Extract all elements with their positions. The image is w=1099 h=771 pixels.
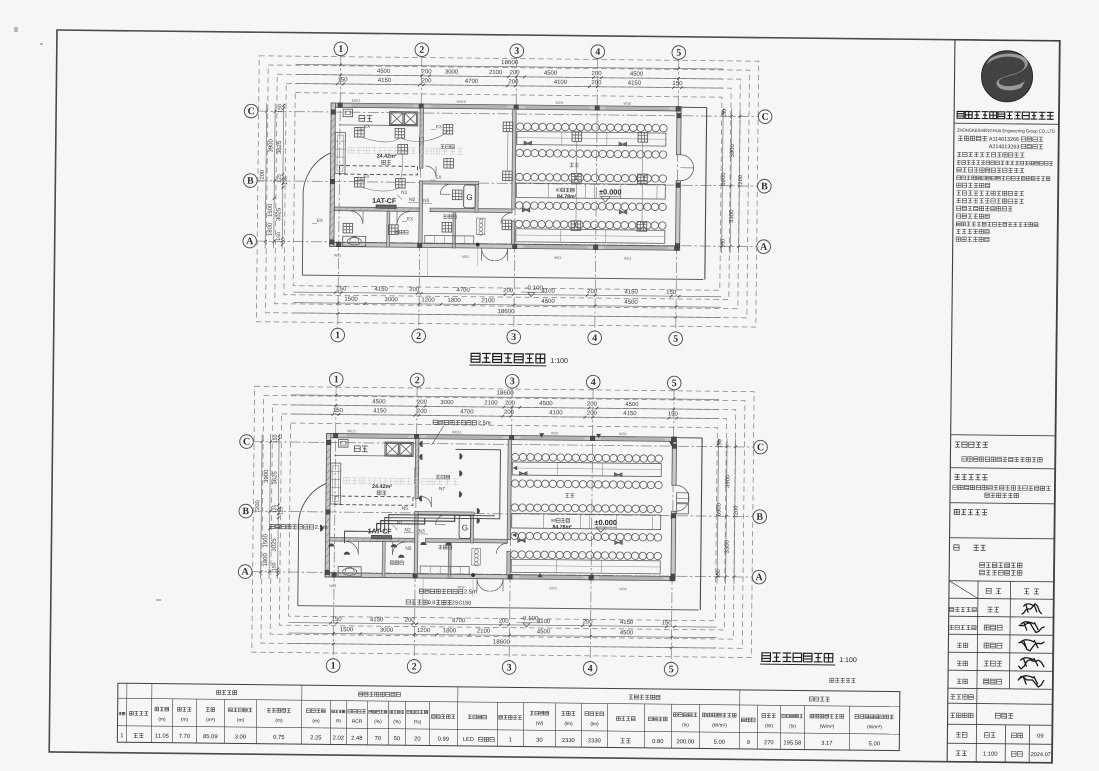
svg-text:1:100: 1:100 [983,752,998,758]
svg-text:2.02: 2.02 [333,736,344,742]
svg-text:EX: EX [407,216,413,221]
svg-text:(lm): (lm) [564,721,573,727]
svg-text:195.58: 195.58 [783,740,801,746]
svg-text:30: 30 [536,738,543,744]
svg-text:1:100: 1:100 [839,657,857,664]
svg-text:2330: 2330 [562,738,575,744]
svg-text:EX: EX [436,124,442,129]
svg-text:N5: N5 [405,546,412,552]
svg-text:2SC150: 2SC150 [452,600,472,606]
svg-text:(%): (%) [414,719,422,725]
svg-text:200.00: 200.00 [676,739,694,745]
svg-text:0.99: 0.99 [438,737,449,743]
svg-text:(lx): (lx) [682,722,689,728]
svg-text:(W/m²): (W/m²) [867,724,882,730]
svg-text:2.48: 2.48 [351,736,362,742]
svg-text:N5: N5 [402,506,409,512]
svg-text:70: 70 [375,736,382,742]
svg-text:1: 1 [509,737,512,743]
svg-text:(m): (m) [181,717,189,723]
svg-text:(W): (W) [765,723,773,729]
svg-text:09: 09 [1037,734,1044,740]
svg-text:2024.07: 2024.07 [1031,752,1051,758]
svg-text:1: 1 [120,733,123,739]
svg-text:EX: EX [364,124,370,129]
svg-text:(W): (W) [536,721,544,727]
svg-text:LED: LED [463,737,474,743]
svg-text:11.05: 11.05 [155,734,169,740]
svg-text:EX: EX [435,175,441,180]
svg-text:0.8: 0.8 [428,600,436,606]
svg-text:20: 20 [414,736,421,742]
svg-text:(W/m²): (W/m²) [712,723,727,729]
svg-text:(W/m²): (W/m²) [820,724,835,730]
svg-text:RCR: RCR [352,719,363,725]
svg-text:A214013263: A214013263 [989,144,1020,150]
svg-text:(lx): (lx) [789,723,796,729]
svg-text:(m): (m) [312,718,320,724]
svg-text:0.80: 0.80 [652,739,663,745]
svg-text:9: 9 [747,740,750,746]
svg-text:2.5m: 2.5m [315,525,328,531]
svg-text:7.70: 7.70 [179,734,190,740]
svg-text:5.00: 5.00 [714,740,725,746]
svg-text:N7: N7 [439,486,446,492]
svg-text:2.5m: 2.5m [478,421,491,427]
svg-text:50: 50 [394,736,401,742]
svg-text:(%): (%) [374,719,382,725]
svg-text:(m): (m) [237,717,245,723]
svg-text:2.5m: 2.5m [464,589,477,595]
svg-text:(%): (%) [393,719,401,725]
svg-text:2.25: 2.25 [310,735,321,741]
svg-text:(m): (m) [275,718,283,724]
svg-text:85.09: 85.09 [203,734,218,740]
svg-text:3.00: 3.00 [235,734,246,740]
svg-text:EX: EX [363,174,369,179]
svg-text:RI: RI [336,719,341,725]
svg-text:0.75: 0.75 [273,735,284,741]
svg-text:5.00: 5.00 [869,741,880,747]
svg-text:270: 270 [764,740,774,746]
svg-text:(m): (m) [158,717,166,723]
svg-text:(m²): (m²) [206,717,215,723]
svg-text:3.17: 3.17 [821,741,832,747]
svg-text:ZHONGKESHENGHUA Engineering Gr: ZHONGKESHENGHUA Engineering Group CO.,LT… [957,128,1056,134]
svg-text:1:100: 1:100 [550,358,568,365]
svg-text:EX: EX [317,218,323,223]
svg-text:(lm): (lm) [590,721,599,727]
svg-text:A114013266: A114013266 [989,137,1019,143]
svg-text:2330: 2330 [588,738,601,744]
